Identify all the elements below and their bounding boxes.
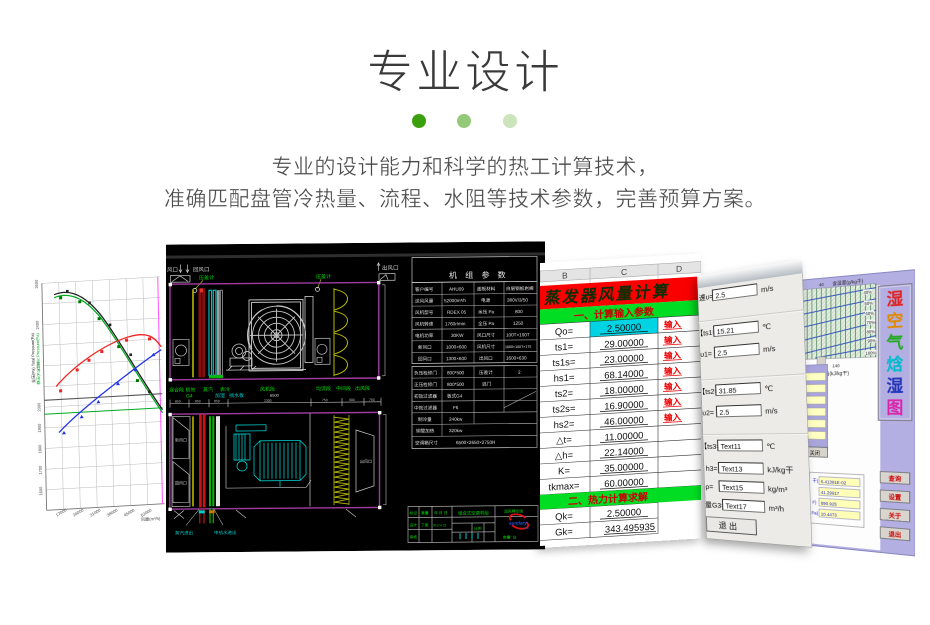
svg-text:丁类: 丁类 xyxy=(421,522,429,527)
svg-text:℃: ℃ xyxy=(766,442,775,451)
svg-text:中间段: 中间段 xyxy=(336,385,351,392)
svg-text:140: 140 xyxy=(832,363,840,368)
svg-text:Text15: Text15 xyxy=(722,483,743,493)
svg-text:31000: 31000 xyxy=(89,507,102,518)
svg-text:15.21: 15.21 xyxy=(716,326,734,337)
svg-text:2.5: 2.5 xyxy=(717,348,727,358)
svg-text:320kw: 320kw xyxy=(449,428,463,433)
svg-text:40%: 40% xyxy=(863,289,872,295)
svg-text:湿: 湿 xyxy=(885,376,903,395)
svg-text:1760r/min: 1760r/min xyxy=(445,321,466,326)
svg-text:出风口: 出风口 xyxy=(382,264,399,272)
svg-text:Qo=: Qo= xyxy=(555,326,574,338)
svg-text:900: 900 xyxy=(349,398,355,402)
svg-text:2.5: 2.5 xyxy=(719,408,729,417)
svg-text:380V/3/50: 380V/3/50 xyxy=(507,297,528,302)
svg-text:静压(Pa) Static Pressure(Pa): 静压(Pa) Static Pressure(Pa) xyxy=(34,332,41,384)
svg-text:2600: 2600 xyxy=(34,279,39,289)
svg-text:输入: 输入 xyxy=(664,380,681,391)
svg-text:[ h3=: [ h3= xyxy=(702,464,718,473)
svg-text:挡水板: 挡水板 xyxy=(229,392,244,399)
svg-text:hs2=: hs2= xyxy=(554,418,575,430)
svg-text:气: 气 xyxy=(885,332,903,353)
svg-text:Text11: Text11 xyxy=(720,442,741,451)
svg-text:Qk=: Qk= xyxy=(555,511,573,523)
svg-text:RDEX 05: RDEX 05 xyxy=(447,310,467,315)
svg-text:1700: 1700 xyxy=(38,465,43,475)
svg-text:1600: 1600 xyxy=(38,486,43,496)
svg-text:标记: 标记 xyxy=(410,510,418,515)
svg-text:风口: 风口 xyxy=(167,267,178,274)
svg-text:50%: 50% xyxy=(864,300,873,306)
svg-text:审核: 审核 xyxy=(410,534,418,539)
svg-text:kJ/kg干: kJ/kg干 xyxy=(767,465,793,475)
svg-text:输入: 输入 xyxy=(664,349,681,360)
svg-text:80%: 80% xyxy=(866,329,875,335)
svg-text:sundary: sundary xyxy=(509,521,527,526)
svg-text:湿: 湿 xyxy=(885,289,903,309)
svg-text:40: 40 xyxy=(819,282,824,288)
svg-text:F6: F6 xyxy=(453,405,459,410)
svg-text:输入: 输入 xyxy=(664,318,681,329)
svg-text:45000: 45000 xyxy=(123,507,136,518)
svg-text:Text13: Text13 xyxy=(721,464,742,473)
svg-text:压差计: 压差计 xyxy=(316,273,331,280)
svg-text:38000: 38000 xyxy=(106,507,119,518)
svg-text:m/s: m/s xyxy=(765,406,778,416)
svg-text:℃: ℃ xyxy=(764,384,773,394)
svg-text:52000m³/h: 52000m³/h xyxy=(444,298,466,303)
svg-text:tkmax=: tkmax= xyxy=(549,480,580,493)
svg-text:蒸汽: 蒸汽 xyxy=(203,386,213,393)
svg-text:年 月 日: 年 月 日 xyxy=(434,510,448,515)
svg-text:2400: 2400 xyxy=(35,320,40,330)
svg-text:输入: 输入 xyxy=(664,365,681,376)
svg-text:压差计: 压差计 xyxy=(199,274,214,281)
svg-text:31.85: 31.85 xyxy=(719,386,737,396)
svg-text:890.925: 890.925 xyxy=(821,501,837,507)
svg-text:△h=: △h= xyxy=(555,450,574,462)
svg-text:2300: 2300 xyxy=(264,399,272,403)
svg-text:图: 图 xyxy=(887,398,904,417)
svg-text:850: 850 xyxy=(214,399,220,403)
svg-text:ts2s=: ts2s= xyxy=(553,403,576,415)
svg-text:比例: 比例 xyxy=(474,526,482,531)
svg-text:回风口: 回风口 xyxy=(193,266,210,273)
svg-text:逃门: 逃门 xyxy=(482,381,492,388)
svg-text:760: 760 xyxy=(369,398,375,402)
svg-text:1250: 1250 xyxy=(513,321,524,326)
svg-text:℃: ℃ xyxy=(762,322,771,332)
svg-text:70%: 70% xyxy=(866,320,875,326)
svg-text:6500×2650×2750H: 6500×2650×2750H xyxy=(456,440,495,445)
svg-text:速υ=: 速υ= xyxy=(699,292,714,303)
svg-text:750: 750 xyxy=(322,398,328,402)
svg-text:重量: 重量 xyxy=(421,510,429,515)
svg-text:△t=: △t= xyxy=(556,434,572,446)
svg-text:B: B xyxy=(562,270,568,280)
svg-text:ρ=: ρ= xyxy=(705,482,713,491)
svg-text:出风口: 出风口 xyxy=(360,458,372,464)
svg-text:机 组 参 数: 机 组 参 数 xyxy=(449,270,509,281)
svg-text:均流段: 均流段 xyxy=(316,385,331,392)
svg-text:ts2=: ts2= xyxy=(555,388,574,400)
svg-text:100T×100T: 100T×100T xyxy=(506,332,530,337)
svg-text:1900: 1900 xyxy=(37,423,42,433)
svg-text:设计: 设计 xyxy=(410,522,418,527)
svg-text:850: 850 xyxy=(195,399,201,403)
svg-text:电源: 电源 xyxy=(481,297,491,304)
svg-text:加湿: 加湿 xyxy=(215,392,225,399)
svg-text:焓: 焓 xyxy=(887,354,904,375)
svg-text:D: D xyxy=(676,263,682,273)
svg-text:800: 800 xyxy=(515,309,523,314)
svg-text:.com: .com xyxy=(523,526,530,530)
svg-text:ts1s=: ts1s= xyxy=(553,356,576,368)
svg-text:240kw: 240kw xyxy=(449,417,463,422)
svg-text:1800: 1800 xyxy=(37,444,42,454)
svg-text:输入: 输入 xyxy=(664,334,681,345)
svg-text:输入: 输入 xyxy=(664,411,681,422)
svg-text:退 出: 退 出 xyxy=(719,520,738,531)
svg-text:2.5: 2.5 xyxy=(715,290,725,300)
svg-text:G4: G4 xyxy=(186,393,193,399)
svg-text:数量: 台: 数量: 台 xyxy=(503,535,517,540)
svg-text:800*500: 800*500 xyxy=(447,370,465,375)
svg-text:m/s: m/s xyxy=(763,344,776,354)
svg-text:1600×630: 1600×630 xyxy=(506,356,527,361)
svg-text:K=: K= xyxy=(558,465,570,477)
svg-text:新风口: 新风口 xyxy=(175,436,187,442)
svg-text:30KW: 30KW xyxy=(451,333,464,338)
svg-text:hs1=: hs1= xyxy=(554,372,575,384)
svg-text:850: 850 xyxy=(175,400,181,404)
svg-text:6500: 6500 xyxy=(270,393,280,398)
svg-text:90%: 90% xyxy=(867,338,876,344)
svg-text:1300×600: 1300×600 xyxy=(446,356,467,361)
svg-text:m³/h: m³/h xyxy=(768,503,784,513)
svg-text:Pa): Pa) xyxy=(811,510,818,516)
svg-text:kg/m³: kg/m³ xyxy=(768,484,788,494)
svg-text:60%: 60% xyxy=(865,311,874,317)
svg-text:m/s: m/s xyxy=(761,283,774,294)
svg-text:2000: 2000 xyxy=(36,402,41,412)
svg-text:2017.6.22: 2017.6.22 xyxy=(433,523,447,527)
svg-text:ts1=: ts1= xyxy=(555,341,574,353)
svg-text:润风牌空调: 润风牌空调 xyxy=(504,509,523,514)
svg-text:出风段: 出风段 xyxy=(355,385,370,392)
svg-text:C: C xyxy=(621,266,627,276)
svg-text:2: 2 xyxy=(518,370,521,375)
svg-text:F): F) xyxy=(812,500,817,505)
svg-text:1800×100T×175: 1800×100T×175 xyxy=(505,345,531,349)
svg-text:Gk=: Gk= xyxy=(555,526,573,538)
svg-text:800*500: 800*500 xyxy=(447,382,465,387)
svg-text:Text17: Text17 xyxy=(725,501,747,511)
svg-text:(υ1=: (υ1= xyxy=(698,349,712,359)
svg-text:回风口: 回风口 xyxy=(175,480,187,485)
svg-text:(υ2=: (υ2= xyxy=(700,408,714,417)
svg-text:AHU09: AHU09 xyxy=(449,287,464,292)
svg-text:1000×600: 1000×600 xyxy=(446,344,467,349)
svg-text:100%: 100% xyxy=(865,350,876,356)
svg-text:17000: 17000 xyxy=(55,507,68,518)
svg-text:风量(m³/h): 风量(m³/h) xyxy=(141,515,161,523)
svg-text:空: 空 xyxy=(887,310,904,331)
svg-text:输入: 输入 xyxy=(664,396,681,407)
